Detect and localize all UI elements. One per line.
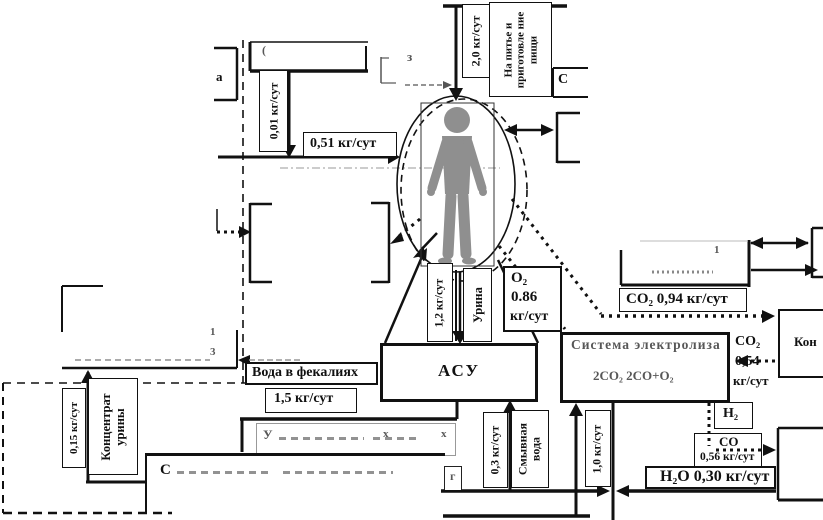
urine-concentrate-text: Концентрат урины [99, 381, 127, 473]
fragment-a: а [216, 70, 223, 84]
drink-cook-node: На питье и приготовле ние пищи [489, 2, 552, 97]
h2-text: Н₂ [723, 406, 738, 421]
faded-text-bar [177, 471, 272, 474]
right-bottom-bracket [778, 428, 823, 500]
o2-name: О₂ [511, 270, 527, 287]
co-value: 0,56 кг/сут [700, 451, 754, 464]
asu-label: АСУ [438, 362, 480, 381]
urine-concentrate-box: Концентрат урины [88, 378, 138, 475]
co2-out-box: СО₂ 0,94 кг/сут [619, 288, 747, 312]
electrolysis-title: Система электролиза [571, 338, 721, 353]
urine-label-box: Урина [463, 268, 492, 342]
feces-water-text: Вода в фекалиях [252, 365, 358, 380]
flow-label-1-2: 1,2 кг/сут [427, 263, 453, 342]
human-figure-icon [427, 107, 487, 265]
fragment-na-one: 1 [714, 244, 720, 256]
h2-box: Н₂ [714, 402, 753, 429]
fragment-c-top: С [558, 72, 568, 87]
fragment-g-box: г [444, 466, 462, 490]
o2-value: 0.86 [511, 289, 537, 306]
faded-s-box: С [145, 453, 445, 512]
co2-in-name: СО₂ [735, 334, 760, 349]
fragment-s: С [160, 462, 171, 479]
o2-flow-box: О₂ 0.86 кг/сут [503, 266, 562, 332]
flow-label-0-3-text: 0,3 кг/сут [489, 426, 502, 475]
fragment-z: з [407, 50, 412, 64]
faded-text-bar [279, 437, 364, 440]
co2-in-label: СО₂ 0,54 кг/сут [733, 334, 781, 396]
drink-cook-label: На питье и приготовле ние пищи [502, 5, 539, 95]
h2o-text: Н₂О 0,30 кг/сут [660, 468, 769, 486]
h2o-flow-box: Н₂О 0,30 кг/сут [645, 466, 776, 489]
flow-label-1-0-text: 1,0 кг/сут [592, 424, 605, 473]
faded-u-box: У х х [256, 423, 456, 456]
flow-label-0-3: 0,3 кг/сут [483, 412, 508, 488]
co2-in-unit: кг/сут [733, 374, 769, 388]
co-flow-box: СО 0,56 кг/сут [694, 433, 762, 467]
co2-out-text: СО₂ 0,94 кг/сут [626, 291, 728, 308]
flush-water-text: Смывная вода [517, 412, 544, 486]
flow-label-0-01: 0,01 кг/сут [259, 70, 288, 152]
urine-label-text: Урина [471, 287, 485, 323]
flow-label-0-15-text: 0,15 кг/сут [68, 402, 80, 454]
feces-water-box: Вода в фекалиях [245, 362, 378, 385]
fragment-x1: х [383, 428, 389, 440]
fragment-g: г [450, 470, 455, 483]
co2-in-value: 0,54 [735, 354, 760, 369]
flow-label-1-2-text: 1,2 кг/сут [434, 278, 447, 327]
top-left-faded-box [250, 42, 368, 71]
concentrator-node: Кон [778, 309, 823, 378]
flow-label-0-51: 0,51 кг/сут [303, 132, 397, 157]
concentrator-partial-text: Кон [794, 335, 817, 349]
flush-water-box: Смывная вода [511, 410, 549, 488]
co-name: СО [719, 435, 739, 449]
flow-label-1-5: 1,5 кг/сут [265, 388, 357, 413]
top-right-boxes [621, 228, 823, 287]
diagram-canvas: 0,01 кг/сут 0,51 кг/сут 2,0 кг/сут На пи… [0, 0, 823, 520]
fragment-n3: 3 [210, 346, 216, 358]
faded-text-bar [283, 471, 393, 474]
faded-text-bar [373, 437, 421, 440]
fragment-x2: х [441, 428, 447, 440]
o2-unit: кг/сут [510, 309, 548, 324]
human-compartment [388, 92, 538, 292]
asu-node: АСУ [380, 343, 538, 402]
electrolysis-node: Система электролиза 2СО₂ 2СО+О₂ [560, 332, 730, 403]
flow-label-2-0-text: 2,0 кг/сут [469, 16, 482, 67]
fragment-paren: ( [262, 44, 266, 57]
flow-label-1-5-text: 1,5 кг/сут [274, 391, 333, 406]
flow-label-0-15: 0,15 кг/сут [62, 388, 86, 468]
flow-label-0-01-text: 0,01 кг/сут [267, 83, 280, 140]
flow-label-0-51-text: 0,51 кг/сут [310, 136, 376, 151]
electrolysis-formula: 2СО₂ 2СО+О₂ [593, 369, 674, 383]
flow-label-1-0: 1,0 кг/сут [585, 410, 611, 487]
fragment-u: У [263, 428, 273, 442]
flow-label-2-0: 2,0 кг/сут [462, 4, 490, 78]
fragment-n1: 1 [210, 326, 216, 338]
